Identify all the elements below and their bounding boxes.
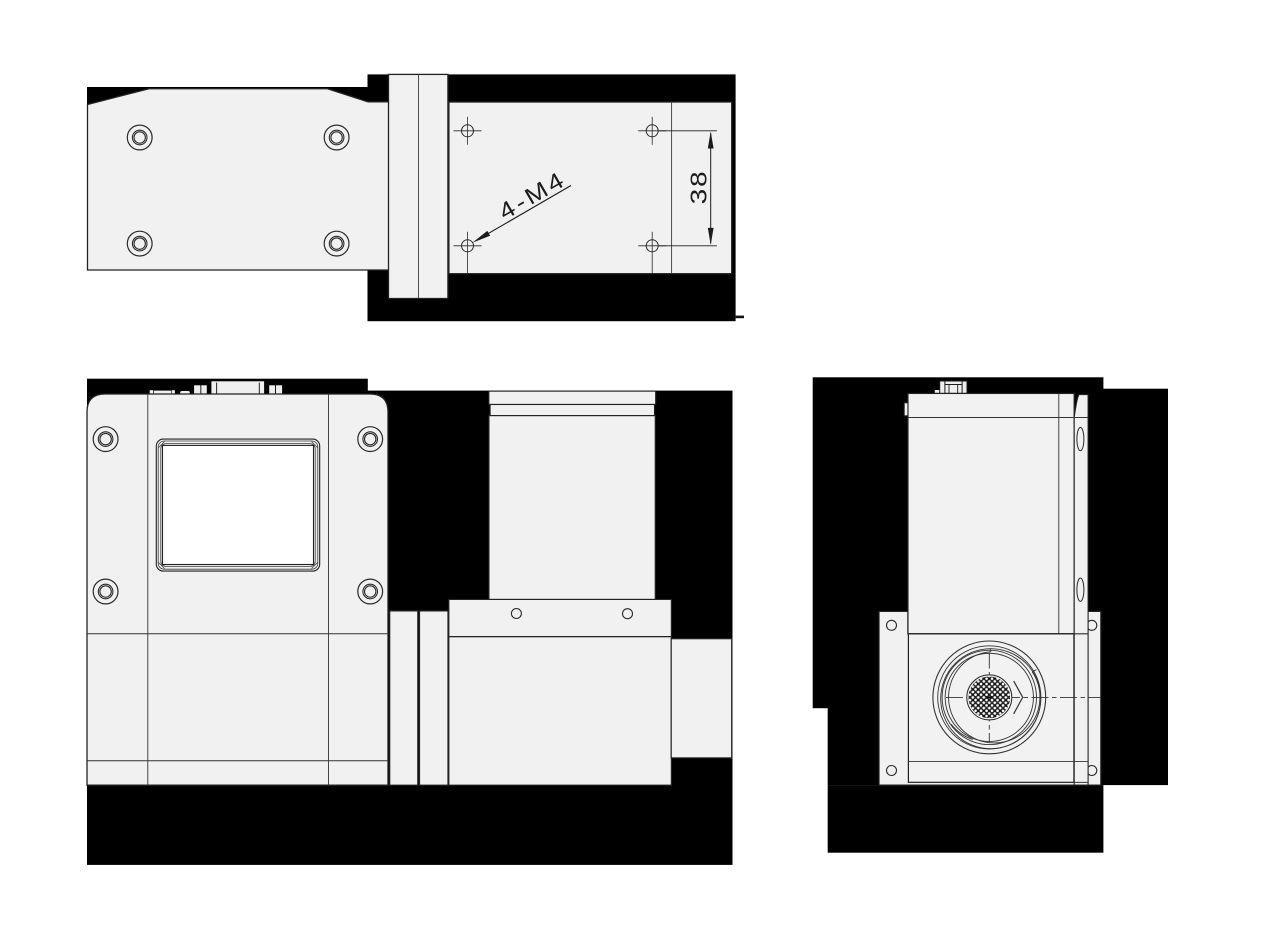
svg-text:38: 38 (687, 170, 712, 205)
